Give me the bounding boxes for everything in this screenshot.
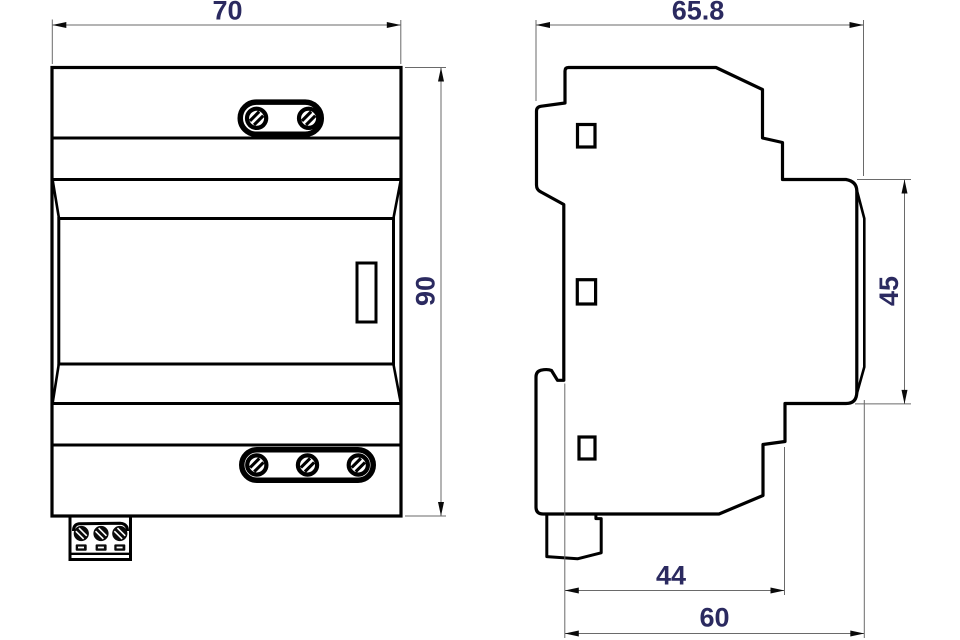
svg-text:70: 70	[212, 0, 242, 26]
svg-text:65.8: 65.8	[672, 0, 725, 26]
svg-text:44: 44	[656, 561, 686, 591]
svg-text:90: 90	[410, 276, 440, 306]
svg-text:60: 60	[699, 603, 729, 633]
svg-text:45: 45	[874, 276, 904, 306]
